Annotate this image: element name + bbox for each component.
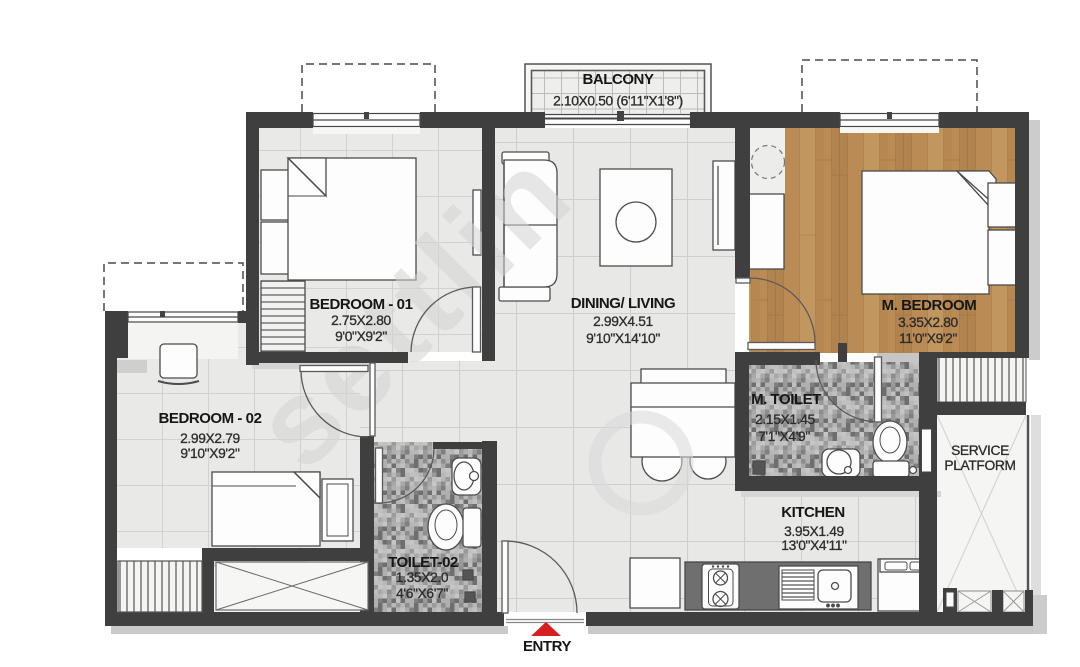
svg-text:TOILET-02: TOILET-02 (388, 554, 458, 571)
svg-text:BALCONY: BALCONY (582, 71, 653, 88)
svg-text:3.35X2.80: 3.35X2.80 (898, 315, 958, 330)
svg-text:9'0"X9'2": 9'0"X9'2" (335, 329, 387, 344)
svg-text:3.95X1.49: 3.95X1.49 (784, 524, 844, 539)
svg-text:PLATFORM: PLATFORM (944, 458, 1015, 473)
svg-text:2.99X2.79: 2.99X2.79 (180, 431, 240, 446)
svg-text:2.99X4.51: 2.99X4.51 (593, 314, 653, 329)
svg-text:2.15X1.45: 2.15X1.45 (755, 412, 815, 427)
svg-text:9'10"X9'2": 9'10"X9'2" (180, 446, 240, 461)
svg-text:BEDROOM - 02: BEDROOM - 02 (159, 410, 262, 427)
svg-text:M. TOILET: M. TOILET (751, 391, 821, 408)
svg-text:2.75X2.80: 2.75X2.80 (331, 313, 391, 328)
svg-text:4'6"X6'7": 4'6"X6'7" (396, 586, 448, 601)
svg-text:13'0"X4'11": 13'0"X4'11" (781, 538, 847, 553)
svg-text:2.10X0.50 (6'11"X1'8"): 2.10X0.50 (6'11"X1'8") (553, 94, 683, 109)
svg-text:1.35X2.0: 1.35X2.0 (396, 570, 449, 585)
svg-text:9'10"X14'10": 9'10"X14'10" (586, 331, 660, 346)
svg-text:11'0"X9'2": 11'0"X9'2" (899, 331, 958, 346)
svg-text:KITCHEN: KITCHEN (781, 504, 845, 521)
svg-text:M. BEDROOM: M. BEDROOM (882, 297, 977, 314)
svg-text:7'1"X4'9": 7'1"X4'9" (758, 429, 810, 444)
svg-text:ENTRY: ENTRY (523, 638, 571, 655)
svg-text:BEDROOM - 01: BEDROOM - 01 (310, 296, 413, 313)
svg-text:SERVICE: SERVICE (951, 443, 1009, 458)
svg-text:DINING/ LIVING: DINING/ LIVING (571, 295, 676, 312)
